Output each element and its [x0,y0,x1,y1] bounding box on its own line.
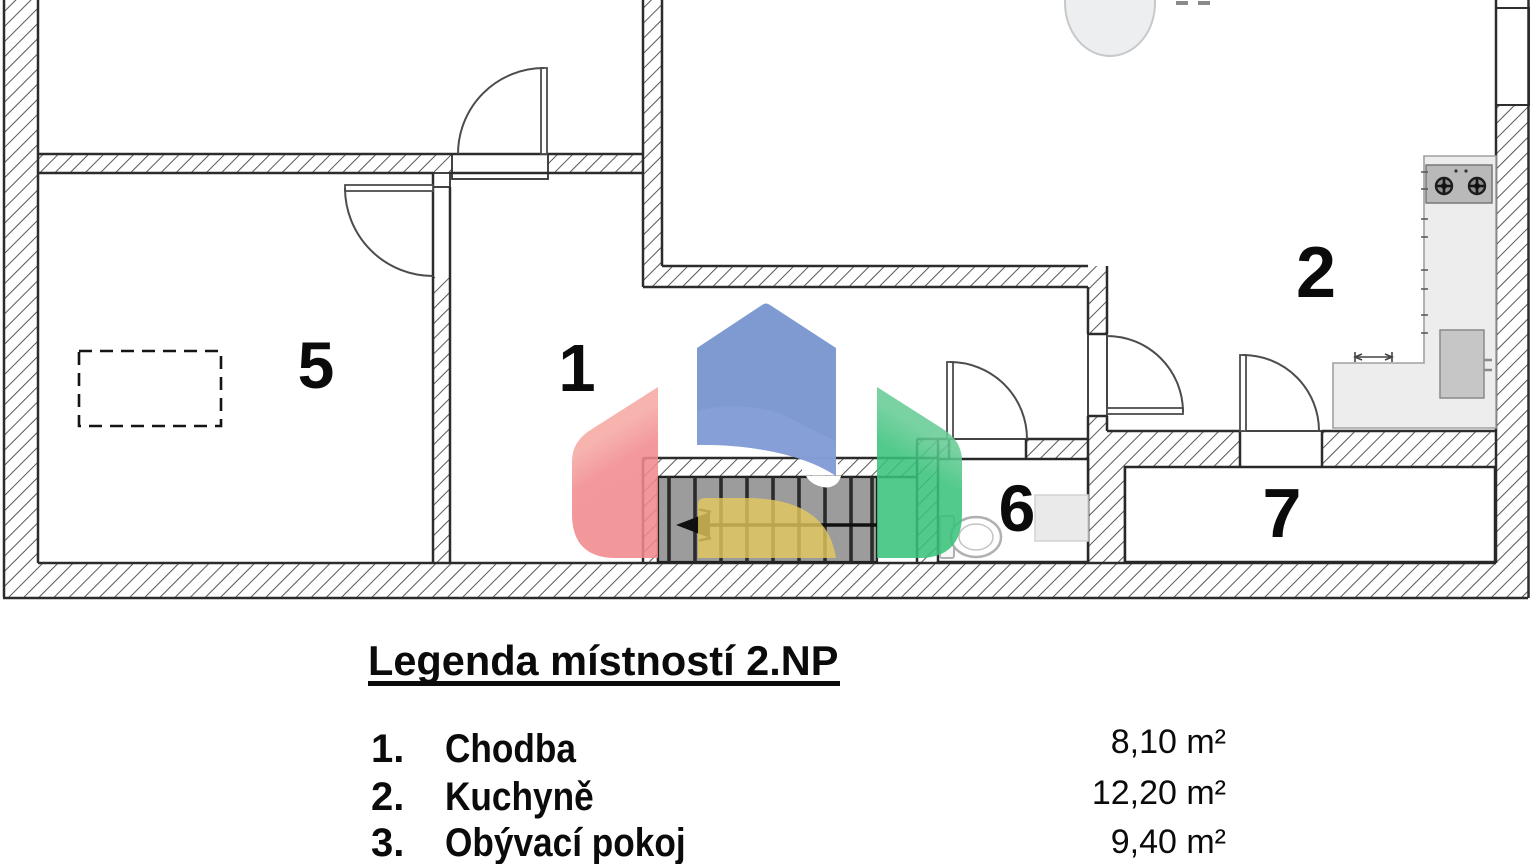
svg-text:2: 2 [1296,233,1336,313]
svg-text:5: 5 [298,328,335,402]
svg-text:7: 7 [1263,474,1302,552]
svg-text:1: 1 [558,331,595,406]
svg-text:6: 6 [999,471,1036,545]
